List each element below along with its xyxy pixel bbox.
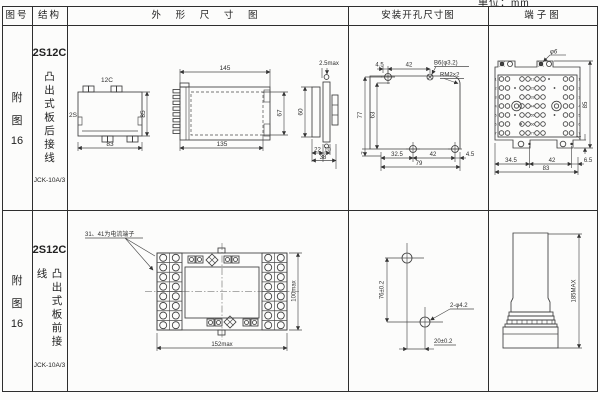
dim-hole-h-span: 20±0.2 [434,339,453,345]
catalog-page: 单位：mm 图号 结构 外 形 尺 寸 图 安装开孔尺寸图 端子图 附 图 16… [0,0,600,400]
svg-text:7: 7 [578,131,580,135]
svg-text:1: 1 [495,77,497,81]
fig-no-cell-row1: 附 图 16 [2,25,32,210]
fig-number: 16 [11,135,23,147]
terminal-diagram-rear-wiring: 1111222233334444555566667777 φ6 85 4 34.… [488,25,598,210]
dim-rear-height: 85 [140,110,147,118]
fig-number: 16 [11,318,23,330]
dim-hole-v-span: 76±0.2 [380,280,386,299]
dim-rear-left: 2S [69,112,78,119]
current-terminal-note: 31、41为电流端子 [85,230,134,238]
svg-text:33: 33 [531,95,535,99]
model-code: 2S12C [33,244,67,256]
thread-spec-label: RM2×2 [440,73,460,79]
svg-text:44: 44 [531,104,535,108]
outline-drawing-front-wiring: 31、41为电流端子 152max 100max [67,210,348,391]
dim-bottom-d2: 42 [430,152,437,158]
svg-text:4: 4 [578,104,580,108]
dim-left-outer: 77 [358,111,364,118]
hole-spec-label: B6(φ3.2) [434,61,458,67]
header-structure: 结构 [32,6,67,25]
terminal-diagram-front-wiring: 185MAX [488,210,598,391]
top-fittings [188,248,239,266]
structure-cell-row2: 2S12C 凸出式板前接线 JCK-10A/3 [32,210,67,391]
dim-top-span: 42 [406,63,413,69]
dim-end-b1: 22 [314,148,321,154]
sideview-teeth [173,90,180,134]
outline-drawing-rear-wiring: 12C 2S 85 83 145 135 67 [67,25,348,210]
dim-top-offset: 4.5 [375,63,384,69]
dim-terminal-b2: 42 [549,158,556,164]
dim-left-inner: 63 [371,111,377,118]
dim-side-inner-height: 67 [277,109,284,117]
svg-text:5: 5 [495,113,497,117]
dim-terminal-total: 83 [543,166,550,172]
dim-side-length-bottom: 135 [217,141,228,148]
dim-bottom-total: 79 [416,161,423,167]
dim-panel-height: 85 [583,101,589,108]
svg-text:55: 55 [531,113,535,117]
dim-overall-height: 185MAX [572,279,578,302]
svg-text:3: 3 [578,95,580,99]
svg-text:1: 1 [578,77,580,81]
dim-rear-top: 12C [101,77,113,84]
dim-bottom-d3: 4.5 [466,152,475,158]
rear-view: 12C 2S 85 83 [69,77,150,151]
svg-text:6: 6 [578,122,580,126]
base-comb [512,320,552,324]
svg-text:6: 6 [495,122,497,126]
svg-text:2: 2 [495,86,497,90]
model-code: 2S12C [33,47,67,59]
fig-char: 图 [12,112,23,128]
header-mounting-dims: 安装开孔尺寸图 [348,6,488,25]
header-fig-no: 图号 [2,6,32,25]
dim-terminal-b1: 34.5 [505,158,517,164]
fig-char: 图 [12,295,23,311]
fig-char: 附 [12,272,23,288]
dim-rear-width: 83 [106,141,114,148]
socket-callout: φ6 [550,50,558,56]
svg-text:4: 4 [495,104,497,108]
side-view: 145 135 67 [173,65,288,151]
mounting-type: 凸出式板前接线 [35,268,65,362]
divider [2,391,598,392]
mounting-drawing-front-wiring: 76±0.2 2-φ4.2 20±0.2 [348,210,488,391]
dim-height-max: 100max [292,280,298,301]
structure-cell-row1: 2S12C 凸出式板后接线 JCK-10A/3 [32,25,67,210]
svg-text:22: 22 [531,86,535,90]
mounting-drawing-rear-wiring: 4.5 42 B6(φ3.2) RM2×2 77 63 7 32.5 42 4.… [348,25,488,210]
svg-text:77: 77 [531,131,535,135]
product-code: JCK-10A/3 [34,362,65,369]
dim-end-height: 60 [298,108,305,116]
header-outline-dims: 外 形 尺 寸 图 [67,6,348,25]
dim-terminal-b3: 6.5 [584,158,593,164]
bottom-fittings [207,316,258,335]
mounting-type: 凸出式板后接线 [42,71,57,166]
dim-width-max: 152max [211,342,232,348]
product-code: JCK-10A/3 [34,177,65,184]
dim-side-length: 145 [220,65,231,72]
panel-screw-marks [500,62,552,67]
fig-no-cell-row2: 附 图 16 [2,210,32,391]
dim-end-gap: 2.5max [319,61,339,67]
svg-text:3: 3 [495,95,497,99]
svg-text:5: 5 [578,113,580,117]
dim-bottom-d1: 32.5 [391,152,403,158]
dim-end-b2: 10 [324,148,331,154]
svg-text:66: 66 [531,122,535,126]
terminal1-grid: 1111222233334444555566667777 [495,77,581,136]
end-view: 60 2.5max 22 10 38 [298,61,339,169]
hole-spec-label: 2-φ4.2 [450,303,468,309]
svg-text:11: 11 [531,77,535,81]
header-terminal-diagram: 端子图 [488,6,598,25]
svg-text:7: 7 [495,131,497,135]
dim-end-total: 38 [320,155,327,161]
svg-text:2: 2 [578,86,580,90]
fig-char: 附 [12,89,23,105]
